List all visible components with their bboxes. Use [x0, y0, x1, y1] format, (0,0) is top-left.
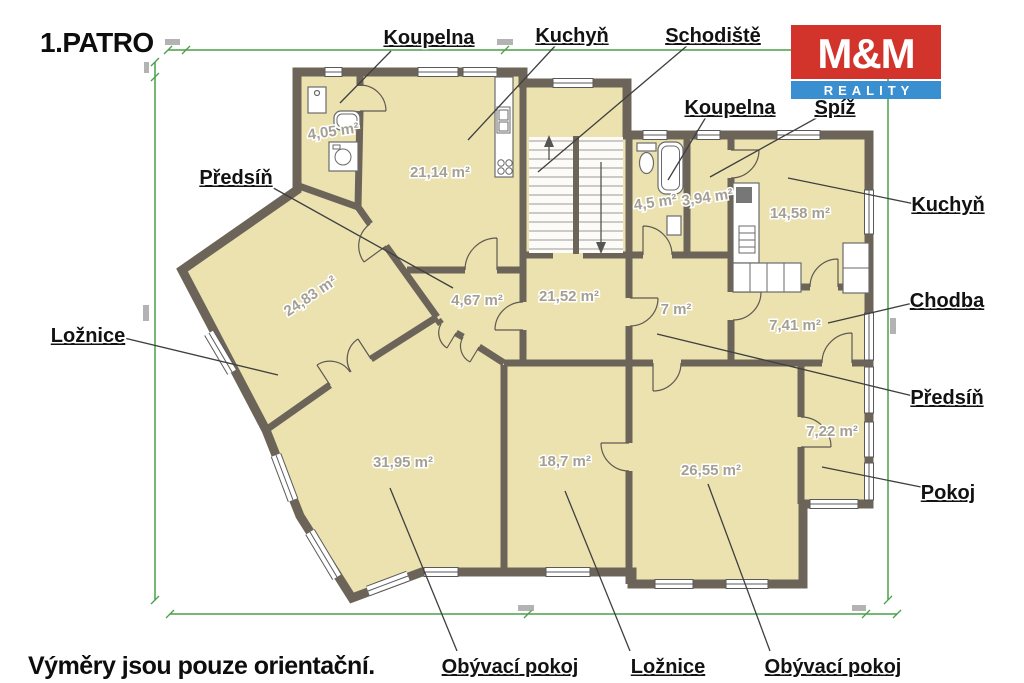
toilet-tank [637, 143, 656, 151]
dimension-number-smudge [890, 318, 896, 334]
room-label-obyvaci-pokoj-right: Obývací pokoj [765, 656, 902, 678]
dimension-number-smudge [165, 39, 180, 45]
area-label-kuchyn-right: 14,58 m² [770, 205, 830, 222]
room-label-spiz: Spíž [814, 97, 855, 119]
area-label-predsin-left: 4,67 m² [451, 292, 503, 309]
page-title: 1.PATRO [40, 27, 154, 58]
toilet [640, 153, 654, 174]
area-label-pokoj: 7,22 m² [806, 423, 858, 440]
room-label-koupelna-top: Koupelna [383, 27, 475, 49]
area-label-obyvaci-left: 31,95 m² [373, 454, 433, 471]
logo-bottom-text: REALITY [824, 83, 915, 98]
building [182, 72, 869, 598]
dimension-number-smudge [497, 39, 513, 45]
room-label-kuchyn-right: Kuchyň [911, 194, 984, 216]
area-label-loznice-bottom: 18,7 m² [539, 453, 591, 470]
dimension-number-smudge [144, 62, 149, 73]
stair-divider-wall [573, 136, 579, 254]
stove [736, 187, 752, 203]
room-label-schodiste: Schodiště [665, 25, 761, 47]
area-label-chodba: 7,41 m² [769, 317, 821, 334]
area-label-hala: 21,52 m² [539, 288, 599, 305]
room-label-obyvaci-pokoj-left: Obývací pokoj [442, 656, 579, 678]
room-label-predsin-right: Předsíň [910, 387, 983, 409]
dimension-number-smudge [518, 605, 534, 611]
floorplan-canvas: Koupelna Kuchyň Schodiště Koupelna Spíž … [0, 0, 1024, 683]
disclaimer-text: Výměry jsou pouze orientační. [28, 652, 375, 680]
floorplan-page: Koupelna Kuchyň Schodiště Koupelna Spíž … [0, 0, 1024, 683]
room-label-predsin-left: Předsíň [199, 167, 272, 189]
staircase [529, 135, 623, 254]
dimension-number-smudge [852, 605, 866, 611]
area-label-obyvaci-right: 26,55 m² [681, 462, 741, 479]
kitchen-topleft-fixtures [495, 77, 513, 177]
room-label-chodba: Chodba [910, 290, 985, 312]
mm-reality-logo: M&M REALITY [791, 25, 941, 99]
room-label-loznice-left: Ložnice [51, 325, 125, 347]
area-label-kuchyn-top: 21,14 m² [410, 164, 470, 181]
room-label-loznice-bottom: Ložnice [631, 656, 705, 678]
room-label-pokoj: Pokoj [921, 482, 975, 504]
dimension-number-smudge [143, 305, 149, 321]
sink [667, 216, 681, 235]
logo-top-text: M&M [817, 30, 914, 77]
area-label-predsin-right: 7 m² [661, 301, 692, 318]
room-label-kuchyn-top: Kuchyň [535, 25, 608, 47]
room-label-koupelna-right: Koupelna [684, 97, 776, 119]
